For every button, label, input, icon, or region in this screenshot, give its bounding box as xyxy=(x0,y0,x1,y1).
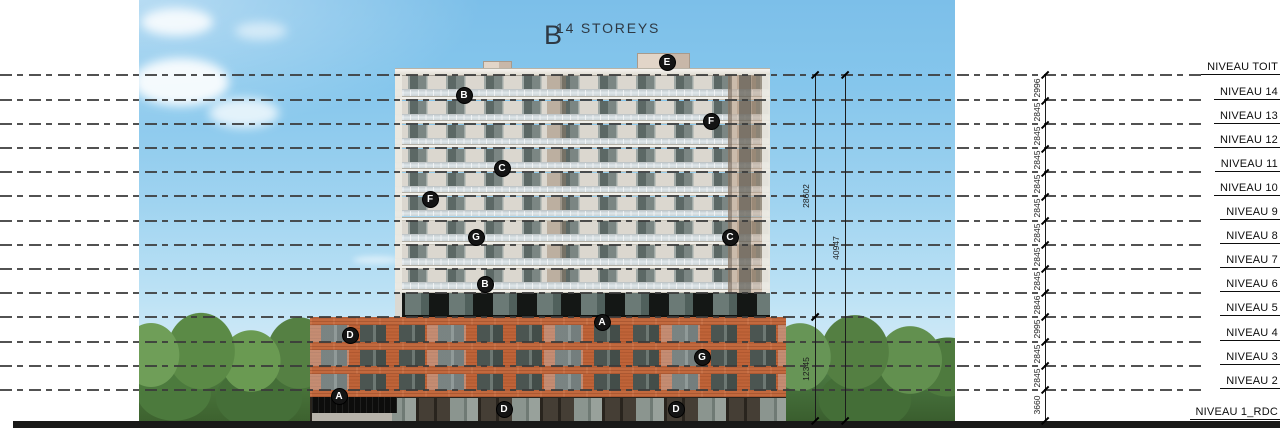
tower-floor-slab xyxy=(395,144,770,148)
tower-window-strip xyxy=(395,197,770,210)
tower-edge-right xyxy=(762,75,770,293)
tower-floor-slab xyxy=(395,241,770,245)
tower-roof-parapet xyxy=(395,68,770,76)
podium-window-strip xyxy=(310,350,786,366)
tower-window-strip xyxy=(395,173,770,186)
ground-bar xyxy=(13,421,1280,428)
podium-base-ramp xyxy=(312,413,392,421)
tower-balcony-strip xyxy=(395,282,770,289)
roof-box-mechanical xyxy=(637,53,690,69)
tower-floor-slab xyxy=(395,217,770,221)
tower-floor-slab xyxy=(395,120,770,124)
podium-brick-spandrel xyxy=(310,366,786,375)
tower-window-strip xyxy=(395,125,770,138)
tower-balcony-strip xyxy=(395,89,770,97)
podium-brick-spandrel xyxy=(310,317,786,326)
tower-floor-slab xyxy=(395,192,770,196)
podium-window-strip xyxy=(310,374,786,390)
tower-window-strip xyxy=(395,149,770,162)
building-elevation xyxy=(0,0,1280,428)
tower-balcony-strip xyxy=(395,138,770,145)
tower-window-strip xyxy=(395,221,770,234)
tower-window-strip xyxy=(395,76,770,89)
tower-edge-left xyxy=(395,75,402,317)
tower-storey-dark-band xyxy=(395,293,770,317)
podium-brick-spandrel xyxy=(310,342,786,351)
tower-floor-slab xyxy=(395,265,770,269)
tower-window-strip xyxy=(395,101,770,114)
tower-balcony-strip xyxy=(395,210,770,217)
elevation-drawing: B14 STOREYS NIVEAU TOITNIVEAU 14NIVEAU 1… xyxy=(0,0,1280,428)
podium-brick-base-band xyxy=(310,390,786,398)
tower-floor-slab xyxy=(395,168,770,172)
podium-black-wall xyxy=(312,397,397,413)
tower-floor-slab xyxy=(395,96,770,100)
tower-window-strip xyxy=(395,245,770,258)
podium-window-strip xyxy=(310,325,786,342)
tower-tan-section xyxy=(728,75,762,293)
storey-count-label: 14 STOREYS xyxy=(556,20,660,36)
tower-window-strip xyxy=(395,269,770,282)
